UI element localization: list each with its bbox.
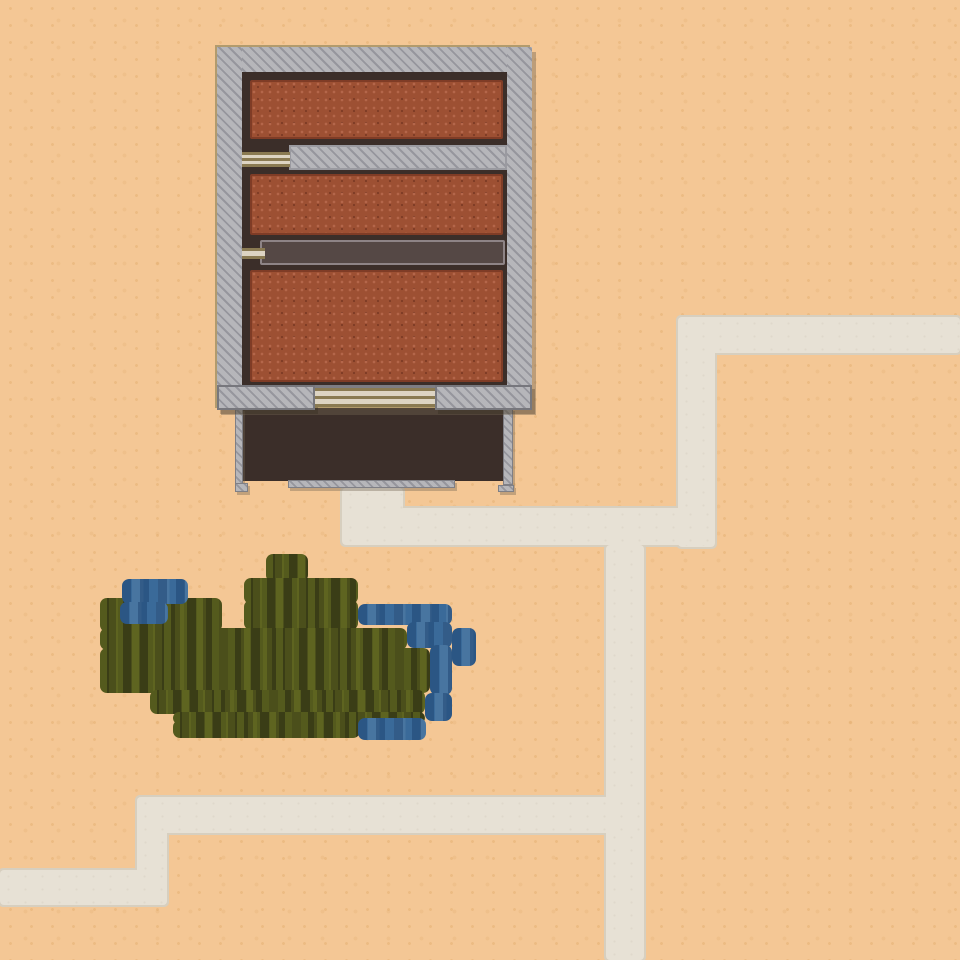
- footpath-top-right-horizontal: [678, 317, 960, 353]
- water-pool-east-bump: [452, 628, 476, 666]
- courtyard-wall-east: [503, 408, 513, 485]
- vegetation-bottom-band: [173, 720, 360, 738]
- brick-room-middle: [250, 174, 503, 235]
- courtyard-wall-west-foot: [235, 483, 248, 492]
- water-pool-northwest-upper: [122, 579, 188, 604]
- brick-room-north: [250, 80, 503, 139]
- footpath-center-vertical: [606, 545, 644, 960]
- wall-left: [217, 47, 242, 410]
- wall-bottom-right: [435, 385, 532, 410]
- building-shell: [215, 45, 530, 408]
- footpath-lower-horizontal: [137, 797, 644, 833]
- footpath-left-edge-horizontal: [0, 870, 167, 905]
- game-map[interactable]: [0, 0, 960, 960]
- wall-top: [217, 47, 532, 72]
- courtyard-floor: [243, 405, 503, 481]
- room-divider-wall: [289, 145, 507, 170]
- water-pool-south-band: [358, 718, 426, 740]
- courtyard-wall-east-foot: [498, 485, 514, 492]
- brick-room-south: [250, 270, 503, 382]
- vegetation-band-3: [150, 690, 425, 714]
- water-pool-east-column: [430, 645, 452, 695]
- vegetation-mid-block: [244, 600, 358, 630]
- wall-bottom-left: [217, 385, 315, 410]
- door-west-upper: [242, 152, 290, 167]
- vegetation-band-2: [100, 648, 430, 693]
- footpath-courtyard-stub: [342, 488, 403, 518]
- door-south-gate: [315, 388, 435, 407]
- courtyard-wall-south: [288, 480, 455, 488]
- water-pool-southeast: [425, 693, 452, 721]
- vegetation-band-1: [100, 628, 407, 650]
- wall-right: [507, 47, 532, 410]
- door-west-lower: [242, 248, 265, 259]
- courtyard-wall-west: [235, 408, 243, 485]
- water-pool-northwest-lower: [120, 602, 168, 624]
- long-table: [260, 240, 505, 265]
